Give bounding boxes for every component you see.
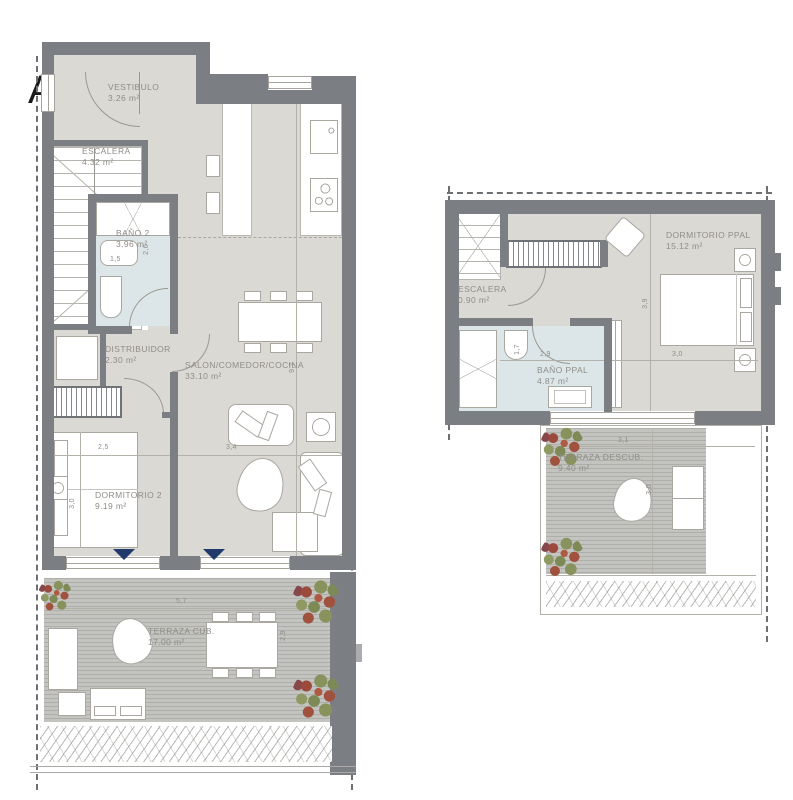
room-label-dormitorio2: DORMITORIO 2 9.19 m² [95, 490, 162, 512]
room-label-salon: SALON/COMEDOR/COCINA 33.10 m² [185, 360, 304, 382]
room-area: 0.90 m² [458, 295, 507, 306]
room-area: 2.30 m² [105, 355, 171, 366]
bed-pillow [740, 312, 752, 342]
plant [292, 576, 340, 626]
chair [244, 343, 261, 353]
dim-label: 9,7 [289, 362, 296, 373]
dim-label: 3,0 [69, 498, 76, 509]
wall [604, 318, 612, 418]
deck-edge-line [546, 575, 756, 576]
room-name: BAÑO PPAL [537, 365, 588, 376]
room-area: 9.19 m² [95, 501, 162, 512]
chair [244, 291, 261, 301]
terraza-deck [44, 578, 330, 722]
wall [268, 90, 314, 104]
wall [196, 74, 268, 104]
site-line [30, 766, 356, 767]
wall [162, 412, 178, 418]
chair [270, 343, 287, 353]
wall [142, 140, 148, 196]
wall [445, 200, 775, 214]
plant [292, 670, 340, 720]
wall [170, 372, 178, 556]
chair [212, 612, 229, 622]
dim-line [500, 360, 758, 361]
room-name: ESCALERA [458, 284, 507, 295]
bed-pillow [54, 440, 68, 480]
wall [761, 200, 775, 425]
room-label-vestibulo: VESTIBULO 3.26 m² [108, 82, 159, 104]
wall-pier [761, 253, 781, 271]
dim-label: 1,7 [514, 344, 521, 355]
bed-split-line [736, 274, 737, 346]
room-area: 15.12 m² [666, 241, 751, 252]
wall [160, 556, 200, 570]
room-label-escalera: ESCALERA 4.32 m² [82, 146, 131, 168]
wall [500, 240, 508, 267]
floorplan-page: A [0, 0, 793, 800]
chair [259, 612, 276, 622]
dim-line [48, 455, 344, 456]
dim-label: 2,6 [143, 244, 150, 255]
wall-step [356, 644, 362, 662]
window-marker-icon [113, 549, 135, 560]
closet [506, 240, 602, 268]
window [550, 412, 695, 424]
plant [38, 578, 72, 612]
dim-label: 1,5 [110, 256, 121, 263]
kitchen-counter [300, 92, 342, 236]
room-area: 3.26 m² [108, 93, 159, 104]
room-name: DISTRIBUIDOR [105, 344, 171, 355]
chair [236, 668, 253, 678]
wall [44, 556, 66, 570]
dim-line [80, 432, 81, 548]
chair [212, 668, 229, 678]
sofa-chaise [272, 512, 318, 552]
room-name: VESTIBULO [108, 82, 159, 93]
wall [695, 411, 775, 425]
kitchen-hob [310, 178, 338, 212]
stool [206, 155, 220, 177]
room-area: 17.00 m² [148, 637, 215, 648]
sink-basin [554, 390, 586, 404]
void-dashed-line [178, 237, 342, 238]
staircase [455, 212, 501, 280]
side-table [306, 412, 336, 442]
chair [296, 291, 313, 301]
dim-label: 5,7 [176, 598, 187, 605]
chair [259, 668, 276, 678]
dim-label: 3,4 [226, 444, 237, 451]
dining-table [238, 302, 322, 342]
kitchen-island [222, 92, 252, 236]
room-area: 4.87 m² [537, 376, 588, 387]
dim-label: 3,0 [646, 484, 653, 495]
bed-pillow [54, 496, 68, 536]
dim-label: 2,5 [98, 444, 109, 451]
wall-pier [761, 287, 781, 305]
plant [540, 534, 584, 578]
room-area: 9.40 m² [558, 463, 643, 474]
room-label-terraza-descub: TERRAZA DESCUB. 9.40 m² [558, 452, 643, 474]
dim-line [650, 214, 651, 411]
wall [42, 42, 54, 570]
wall [445, 411, 550, 425]
room-label-escalera-right: ESCALERA 0.90 m² [458, 284, 507, 306]
wall [342, 88, 356, 570]
entry-opening [41, 74, 55, 112]
dim-label: 3,9 [642, 298, 649, 309]
window [268, 76, 312, 89]
dim-label: 3,0 [672, 351, 683, 358]
wall [88, 194, 178, 202]
bench-cushion [120, 706, 142, 716]
outdoor-sofa [48, 628, 78, 690]
boundary-dashed-left [36, 56, 38, 790]
room-name: DORMITORIO PPAL [666, 230, 751, 241]
boundary-dashed-top [447, 192, 772, 194]
room-name: TERRAZA CUB. [148, 626, 215, 637]
room-name: SALON/COMEDOR/COCINA [185, 360, 304, 371]
wall [500, 200, 508, 240]
outdoor-table [206, 622, 278, 668]
room-label-terraza-cub: TERRAZA CUB. 17.00 m² [148, 626, 215, 648]
room-name: ESCALERA [82, 146, 131, 157]
dim-label: 2,9 [280, 630, 287, 641]
wall [44, 324, 96, 330]
dim-label: 3,1 [618, 437, 629, 444]
room-label-bano-ppal: BAÑO PPAL 4.87 m² [537, 365, 588, 387]
kitchen-sink [310, 120, 338, 154]
room-name: DORMITORIO 2 [95, 490, 162, 501]
room-label-dormitorio-ppal: DORMITORIO PPAL 15.12 m² [666, 230, 751, 252]
room-name: BAÑO 2 [116, 228, 150, 239]
wardrobe [44, 386, 122, 418]
wall [600, 240, 608, 267]
window-marker-icon [203, 549, 225, 560]
chair [236, 612, 253, 622]
appliance [56, 336, 98, 380]
dim-line [652, 430, 653, 574]
wall [170, 194, 178, 334]
toilet [100, 276, 122, 318]
room-area: 4.32 m² [82, 157, 131, 168]
hatched-walkway [40, 726, 332, 762]
wall [290, 556, 356, 570]
wall [88, 194, 96, 334]
dim-line [296, 104, 297, 556]
hatched-walkway [546, 581, 756, 607]
floor-plan-left: VESTIBULO 3.26 m² ESCALERA 4.32 m² BAÑO … [0, 0, 400, 800]
room-area: 33.10 m² [185, 371, 304, 382]
outdoor-side-table [58, 692, 86, 716]
room-name: TERRAZA DESCUB. [558, 452, 643, 463]
wall [42, 42, 210, 55]
site-line [30, 772, 356, 773]
chair [270, 291, 287, 301]
shower [459, 330, 497, 408]
chair [296, 343, 313, 353]
floor-plan-right: ESCALERA 0.90 m² DORMITORIO PPAL 15.12 m… [400, 0, 793, 800]
sun-lounger [672, 466, 704, 530]
bench-cushion [94, 706, 116, 716]
room-label-distribuidor: DISTRIBUIDOR 2.30 m² [105, 344, 171, 366]
stool [206, 192, 220, 214]
wall [445, 318, 533, 326]
wall [445, 200, 459, 425]
dim-line [48, 608, 326, 609]
bed-pillow [740, 278, 752, 308]
dim-label: 2,9 [540, 351, 551, 358]
